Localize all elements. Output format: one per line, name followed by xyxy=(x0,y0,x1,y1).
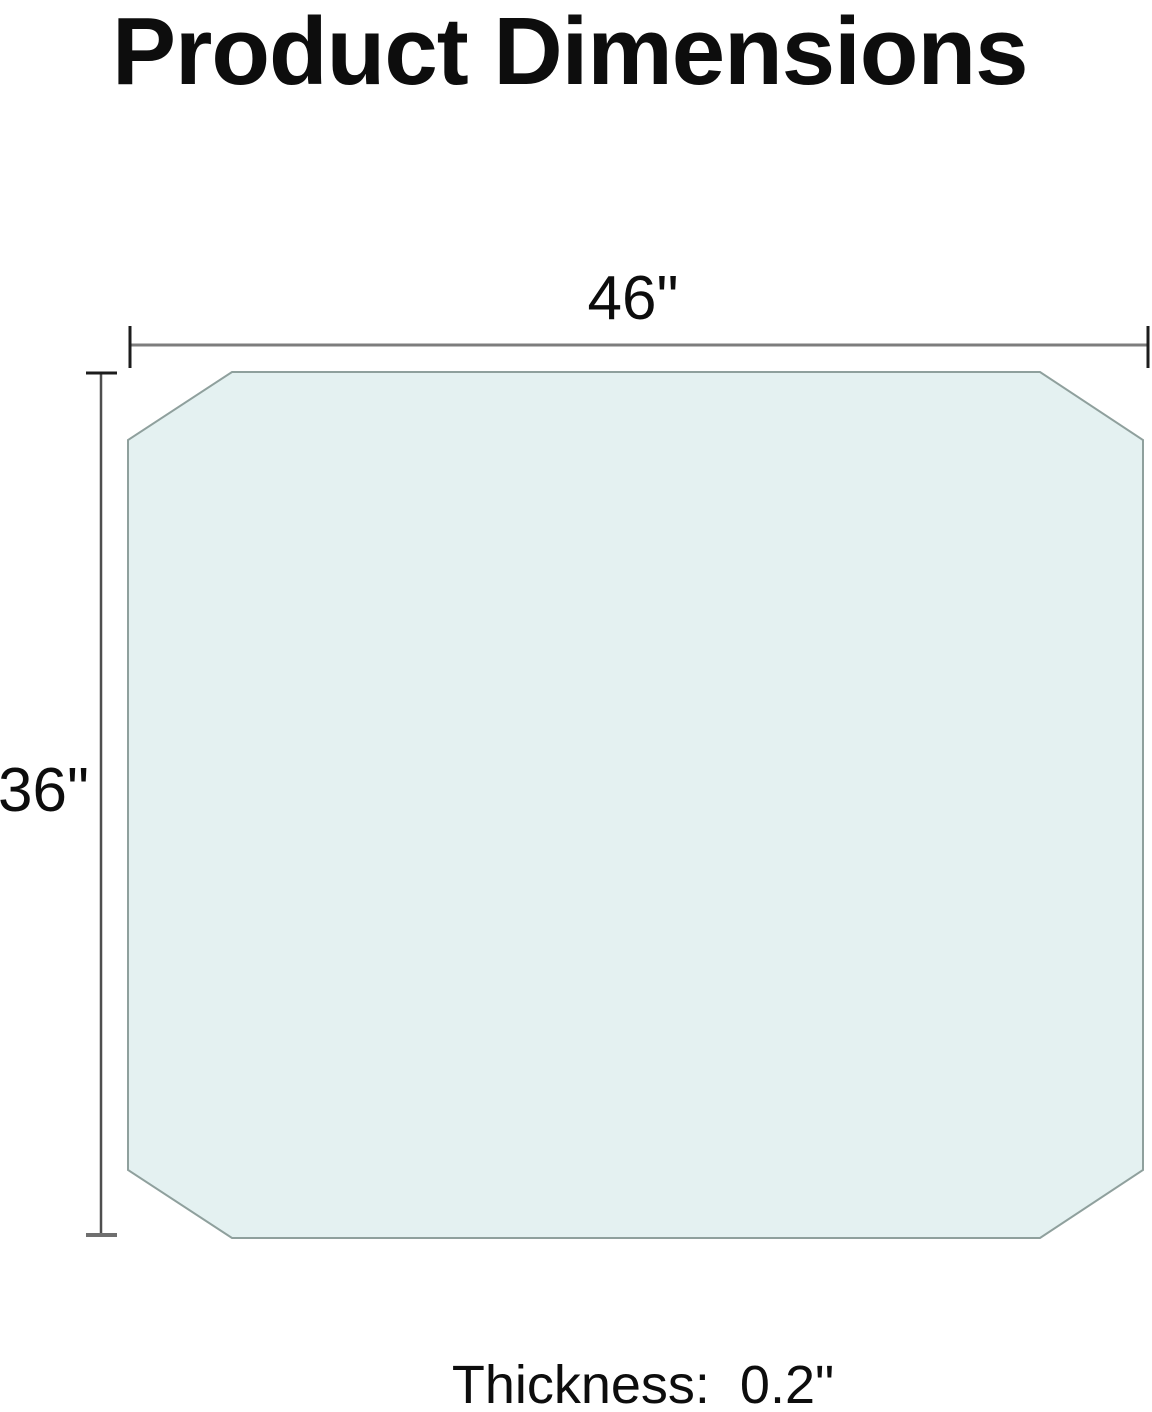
dimension-drawing xyxy=(0,0,1152,1412)
height-dimension-label: 36" xyxy=(0,760,89,822)
thickness-label: Thickness: 0.2" xyxy=(452,1358,834,1412)
product-dimensions-diagram: Product Dimensions 46" 36" Thickness: 0.… xyxy=(0,0,1152,1412)
width-dimension-label: 46" xyxy=(588,268,679,330)
glass-panel-shape xyxy=(128,372,1143,1238)
